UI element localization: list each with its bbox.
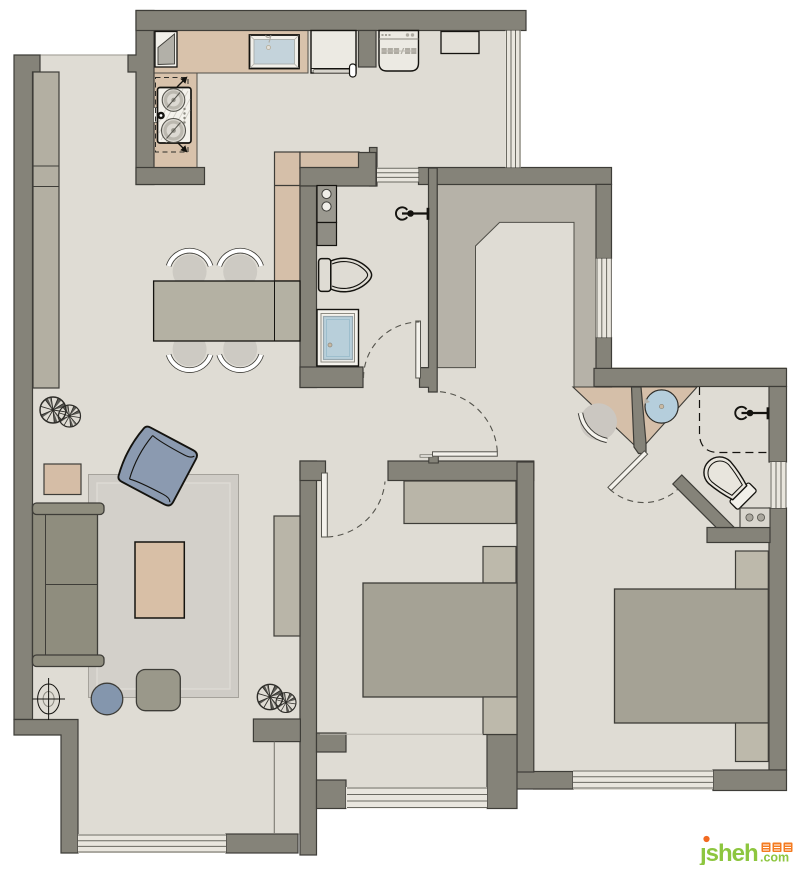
svg-text:.com: .com <box>760 851 789 865</box>
